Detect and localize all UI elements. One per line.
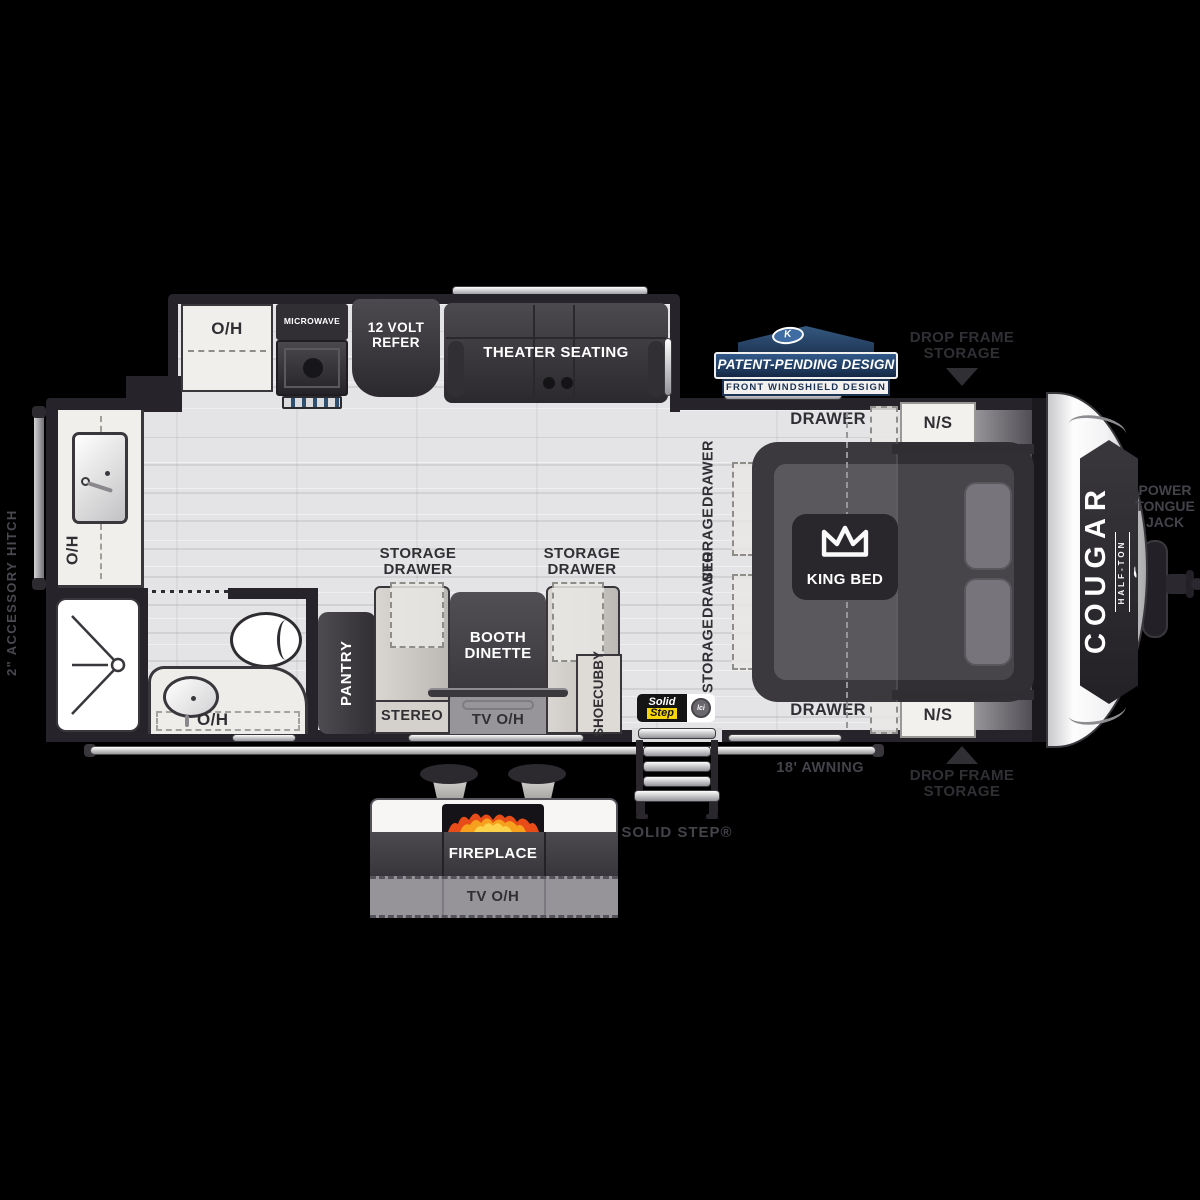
overhead-cabinet-label: O/H [183,320,271,338]
awning-bar [90,746,876,755]
drain-icon [105,471,110,476]
bedroom-drawer-bottom-label: DRAWER [782,702,866,720]
tv-cabinet-door [462,700,534,710]
nightstand-top: N/S [900,402,976,446]
bedroom-drawer-top [870,406,898,444]
seat-back-line [446,337,666,339]
cougar-brand-label: COUGAR [1081,483,1112,661]
badge-sub-label: FRONT WINDSHIELD DESIGN [726,382,886,393]
booth-dinette-label: BOOTH DINETTE [450,630,546,662]
pantry-cabinet: PANTRY [318,612,376,734]
step-foot [636,814,648,819]
stereo-label: STEREO [381,709,443,725]
power-tongue-jack-label: POWER TONGUE JACK [1130,482,1200,530]
fireplace-opening [442,804,544,832]
bed-storage-drawer-1 [732,462,754,556]
fireplace-label: FIREPLACE [442,832,544,876]
badge-main-bar: PATENT-PENDING DESIGN [714,352,898,379]
cougar-shield: COUGAR HALF-TON [1080,440,1138,704]
solid-step-badge-right: lci [687,694,715,722]
accessory-hitch-label: 2" ACCESSORY HITCH [4,478,24,708]
microwave-label: MICROWAVE [284,317,340,326]
hitch-ball-icon [1191,578,1200,590]
kitchen-sink [72,432,128,524]
pantry-label: PANTRY [318,612,376,734]
faucet-lever [87,481,113,493]
solid-step-badge-left: Solid Step [637,694,687,722]
bumper-cap [32,578,46,590]
flame-icon [442,804,544,832]
slideout-side-window [664,338,672,396]
cougar-silhouette-icon [1133,550,1137,594]
range-vent-grate [282,396,342,409]
drop-frame-arrow-down-icon [946,368,978,386]
range-cooktop [276,340,348,396]
badge-main-label: PATENT-PENDING DESIGN [718,358,895,373]
step-foot [706,814,718,819]
refrigerator: 12 VOLT REFER [352,299,440,397]
pillow [964,578,1012,666]
crown-icon [816,522,874,558]
nightstand-top-label: N/S [924,415,953,433]
solid-step-label: SOLID STEP® [615,824,739,841]
king-bed-badge: KING BED [792,514,898,600]
step-tread [638,728,716,739]
awning-label: 18' AWNING [752,760,864,776]
toilet-seat-line [277,620,295,660]
bottom-wall-window [232,734,296,742]
stool-top [420,764,478,784]
king-bed-label: KING BED [792,572,898,588]
bottom-wall-window [408,734,584,742]
bath-overhead-label: O/H [197,711,228,729]
storage-drawer-label-dinette-left: STORAGE DRAWER [368,546,468,578]
tv-oh-label: TV O/H [472,712,524,728]
fireplace-cabinet: FIREPLACE [370,832,618,876]
stool-top [508,764,566,784]
bathroom-wall-top [228,588,314,599]
rv-floorplan-diagram: O/H MICROWAVE 12 VOLT REFER THEATER SEAT… [0,0,1200,1200]
shoe-cubby: SHOE CUBBY [576,654,622,734]
front-cap: COUGAR HALF-TON [1046,392,1148,748]
shower-drain-icon [58,600,138,730]
step-tread-bottom [634,790,720,802]
storage-drawer-label-dinette-right: STORAGE DRAWER [532,546,632,578]
cougar-brand-block: COUGAR HALF-TON [1081,442,1137,702]
shower-pan [56,598,140,732]
exterior-tv-oh-label: TV O/H [442,879,544,915]
step-tread [643,746,711,757]
range-burner [303,358,323,378]
sink-drain-icon [191,696,196,701]
drop-frame-storage-bottom-label: DROP FRAME STORAGE [900,768,1024,800]
tv-cabinet-dinette: TV O/H [450,697,546,734]
pillow [964,482,1012,570]
bed-frame-bar [892,690,1034,700]
galley-counter: O/H [58,410,144,588]
drop-frame-storage-top-label: DROP FRAME STORAGE [900,330,1024,362]
exterior-tv-cabinet: TV O/H [370,876,618,918]
dinette-table: BOOTH DINETTE [450,592,546,700]
lci-logo-icon: lci [691,698,711,718]
bedroom-drawer-top-label: DRAWER [782,411,866,429]
microwave: MICROWAVE [276,304,348,340]
entry-steps [630,726,724,822]
headboard-shade [896,442,1034,702]
bed-frame-bar [892,444,1034,454]
bed-storage-label-2: STORAGE DRAWER [686,574,732,670]
rear-bumper [34,412,44,584]
overhead-cabinet-galley-slide: O/H [181,304,273,392]
bath-vanity-counter: O/H [148,666,308,734]
cabinet-divider [544,832,546,876]
cupholder-icon [543,377,555,389]
cabinet-divider-dashed [188,350,266,352]
shower-curtain-dotted-line [152,590,230,593]
cap-accent-line [1066,693,1128,729]
galley-overhead-label: O/H [60,522,86,578]
stereo-cabinet: STEREO [374,700,450,734]
step-tread [643,761,711,772]
bed-storage-drawer-2 [732,574,754,670]
bed-storage-label-1: STORAGE DRAWER [686,464,732,558]
toilet [230,612,302,668]
solid-step-brand-badge: Solid Step lci [637,694,715,722]
theater-seating-label: THEATER SEATING [444,345,668,361]
refrigerator-label: 12 VOLT REFER [352,321,440,350]
cap-accent-line [1066,411,1128,447]
cupholder-icon [561,377,573,389]
nightstand-bottom-label: N/S [924,707,953,725]
dinette-storage-drawer-left [390,582,444,648]
bath-faucet-icon [185,715,189,727]
badge-sub-bar: FRONT WINDSHIELD DESIGN [722,379,890,396]
shoe-cubby-label: SHOE CUBBY [578,656,620,732]
theater-seating: THEATER SEATING [444,303,668,403]
drop-frame-arrow-up-icon [946,746,978,764]
half-ton-label: HALF-TON [1115,532,1130,613]
table-base-bar [428,688,568,697]
bottom-wall-window [728,734,842,742]
wall-corner-jog [126,376,182,412]
tongue-jack-shaft [1166,574,1188,594]
step-tread [643,776,711,787]
bumper-cap [32,406,46,418]
patent-pending-badge: K PATENT-PENDING DESIGN FRONT WINDSHIELD… [714,326,898,396]
cabinet-divider [544,879,546,915]
